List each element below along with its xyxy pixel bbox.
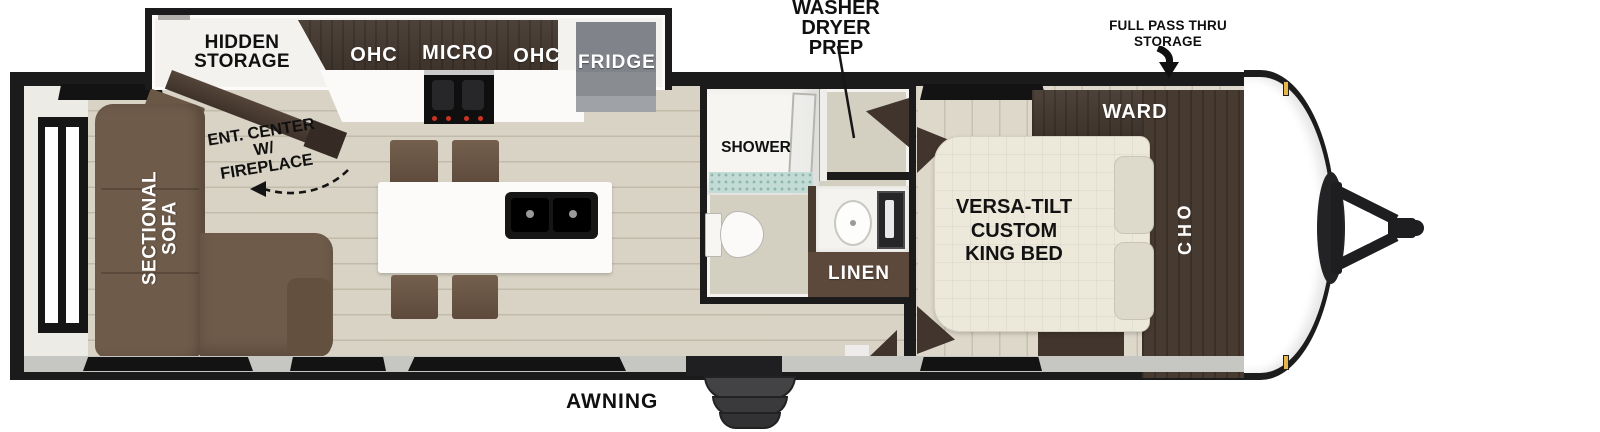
bottom-window — [83, 357, 253, 371]
sink-faucet — [569, 210, 577, 218]
bottom-window — [408, 357, 626, 371]
bedroom-bottom-window — [920, 357, 1042, 371]
stove-knob — [478, 116, 483, 121]
island-stool — [452, 140, 499, 185]
bathroom-divider-wall — [819, 89, 827, 181]
island-stool — [390, 140, 438, 185]
washer-dryer-pointer-line — [830, 44, 860, 140]
full-pass-thru-arrow — [1148, 46, 1188, 80]
stove-burner — [462, 80, 484, 110]
bed-pillow — [1114, 156, 1154, 234]
fridge-label: FRIDGE — [578, 52, 654, 74]
slideout-vent — [158, 15, 190, 20]
sink-faucet — [526, 210, 534, 218]
linen-label: LINEN — [820, 263, 898, 285]
stove-knob — [446, 116, 451, 121]
sectional-sofa-chaise — [200, 233, 333, 358]
stove-knob — [464, 116, 469, 121]
entry-door-opening — [686, 356, 782, 376]
sink-drain — [850, 220, 856, 226]
clearance-light — [1283, 355, 1289, 370]
fridge-bottom-section — [576, 96, 656, 112]
awning-label: AWNING — [566, 390, 676, 414]
island-stool — [452, 275, 498, 319]
stove-burner — [432, 80, 454, 110]
rear-window-pane — [66, 127, 79, 323]
stove — [424, 70, 494, 124]
stove-knob — [432, 116, 437, 121]
washer-dryer-closet-wall — [827, 172, 909, 180]
bottom-window — [290, 357, 386, 371]
shower-label: SHOWER — [706, 139, 806, 157]
kitchen-micro-label: MICRO — [420, 42, 496, 65]
bedroom-top-window — [920, 84, 1046, 100]
island-stool — [391, 275, 438, 319]
kitchen-ohc-right-label: OHC — [508, 45, 566, 68]
floorplan-canvas: HIDDEN STORAGE ENT. CENTER W/ FIREPLACE … — [0, 0, 1600, 432]
stove-handle — [424, 70, 494, 75]
rear-window-pane — [45, 127, 58, 323]
kitchen-ohc-left-label: OHC — [345, 44, 403, 67]
bedroom-ohc-label: OHC — [1171, 204, 1199, 257]
hidden-storage-label: HIDDEN STORAGE — [190, 33, 294, 71]
wardrobe-label: WARD — [1090, 101, 1180, 124]
entry-step — [719, 412, 781, 429]
island-double-sink — [505, 192, 598, 239]
bathroom-sink — [834, 200, 872, 246]
king-bed-label: VERSA-TILT CUSTOM KING BED — [948, 196, 1080, 267]
clearance-light — [1283, 81, 1289, 96]
sofa-arm — [287, 278, 331, 356]
bed-pillow — [1114, 242, 1154, 320]
bathroom-mirror — [877, 191, 905, 249]
sectional-sofa-label: SECTIONAL SOFA — [140, 166, 180, 290]
hitch-a-frame — [1316, 168, 1428, 290]
mirror-reflection — [885, 200, 894, 238]
hallway-ledge — [845, 345, 869, 356]
bedroom-partition-wall — [904, 300, 916, 358]
ent-center-swivel-arrow — [248, 166, 352, 204]
shower-tile-strip — [709, 172, 813, 193]
